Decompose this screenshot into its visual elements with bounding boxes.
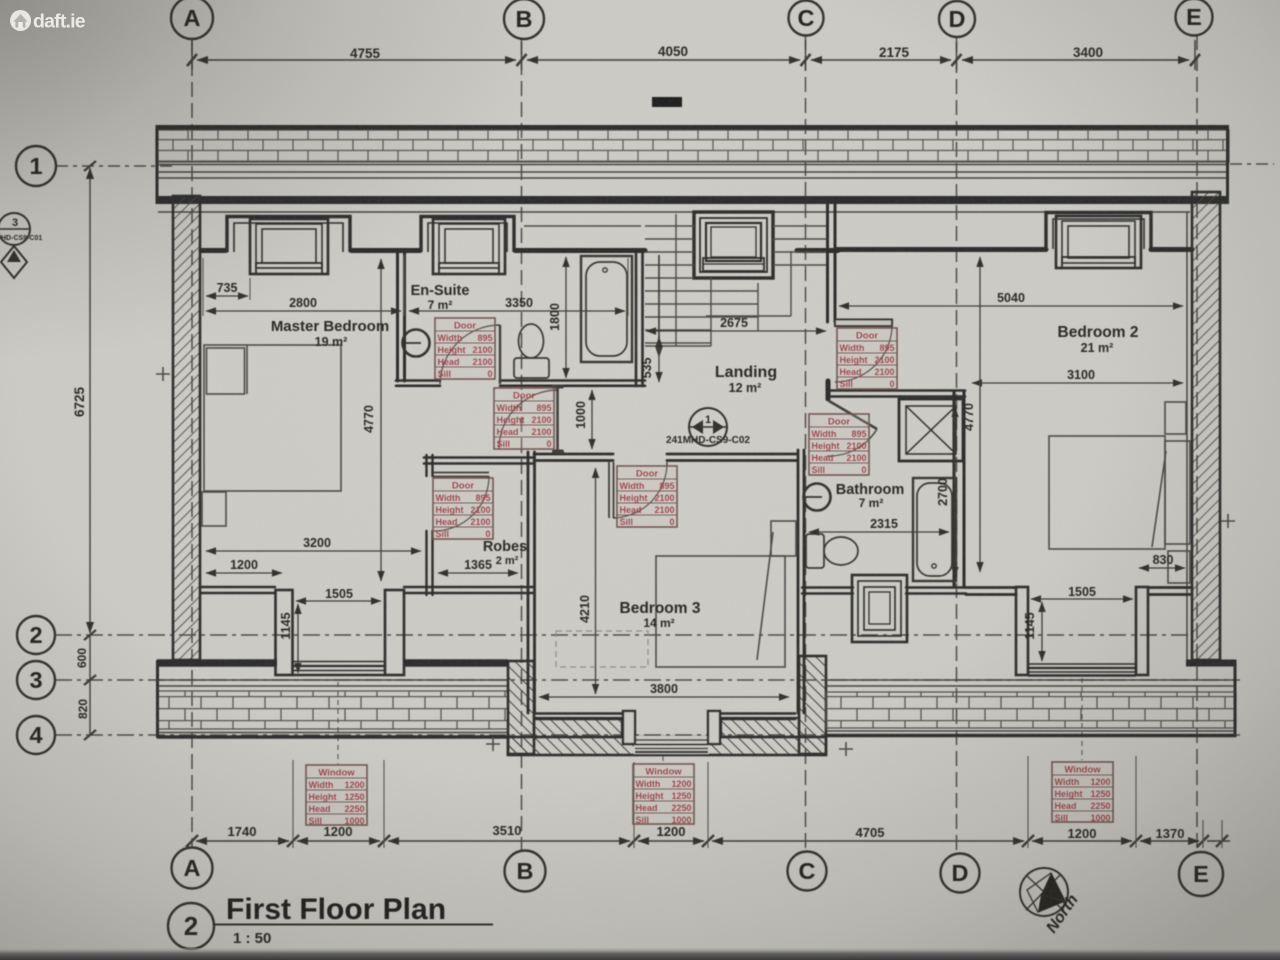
svg-text:daft.ie: daft.ie <box>33 11 86 33</box>
